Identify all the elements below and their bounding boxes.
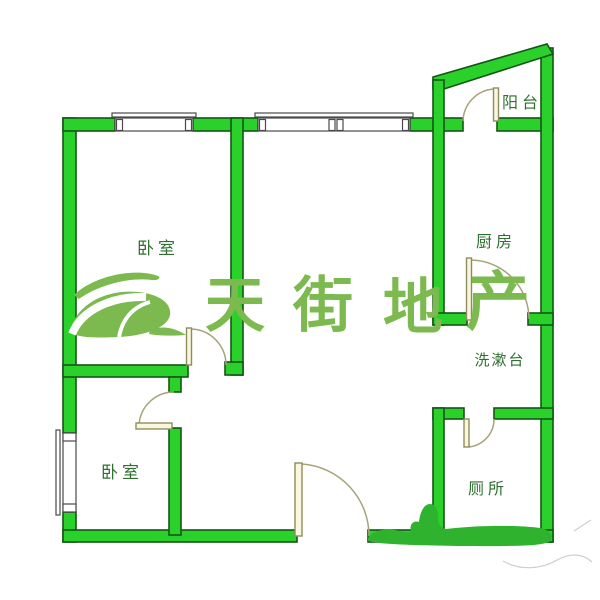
top-wall-seg1 [63,118,115,131]
room-label-toilet: 厕所 [428,475,548,499]
balcony-diagonal-wall [433,44,553,89]
room-label-kitchen: 厨房 [436,228,556,252]
watermark-char-3: 地 [383,278,443,338]
bedroom-top-right-wall-foot [225,362,243,375]
watermark-char-2: 街 [293,276,353,336]
bedroom-divider-wall [63,365,188,377]
toilet-top-wall-right [494,408,553,419]
window-top-1 [112,113,196,131]
left-wall-upper [63,118,76,433]
bedroom-bottom-door [136,392,174,429]
watermark-char-4: 产 [466,271,530,335]
window-top-2 [255,113,413,131]
room-label-washstand: 洗漱台 [440,349,560,370]
watermark-char-1: 天 [205,276,265,336]
shadow-artifact [503,555,592,568]
kitchen-bottom-wall-right [528,313,553,325]
top-wall-seg2 [193,118,258,131]
right-wall [541,48,553,542]
room-label-bedroom-top: 卧室 [98,234,218,259]
floor-plan-canvas: 卧室 阳台 厨房 洗漱台 卧室 厕所 天 街 地 产 [0,0,600,600]
handdrawn-wall-stroke [368,504,552,546]
room-label-balcony: 阳台 [462,89,582,113]
bedroom-divider-stub [169,377,181,392]
room-label-bedroom-bottom: 卧室 [62,458,182,483]
shadow-artifact-2 [574,520,591,531]
tianjie-swoosh-leaf-logo [70,273,186,338]
toilet-door [464,419,494,447]
entrance-door [295,463,369,536]
